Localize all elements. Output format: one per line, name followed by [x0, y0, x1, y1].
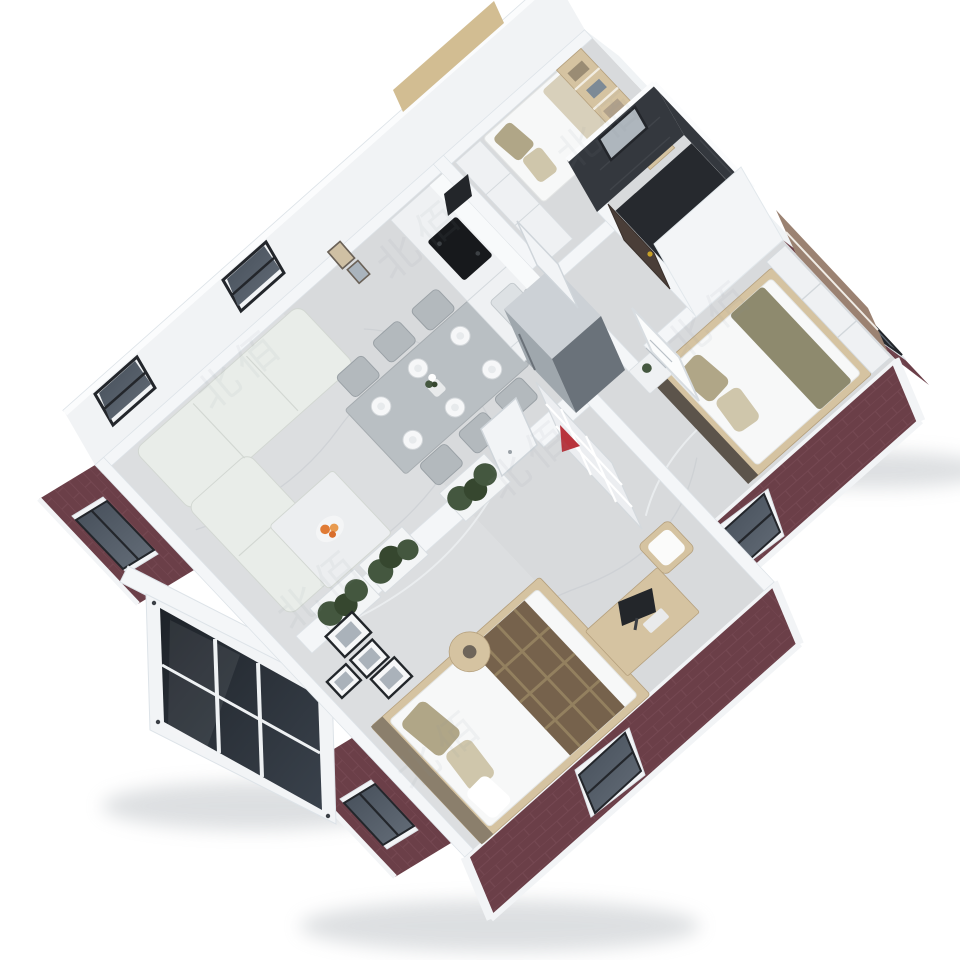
gold-knob: [647, 251, 652, 256]
house-render: 北佰 北佰 北佰 北佰 北佰 北佰 北佰: [0, 0, 960, 960]
monitor-stand: [635, 618, 637, 630]
